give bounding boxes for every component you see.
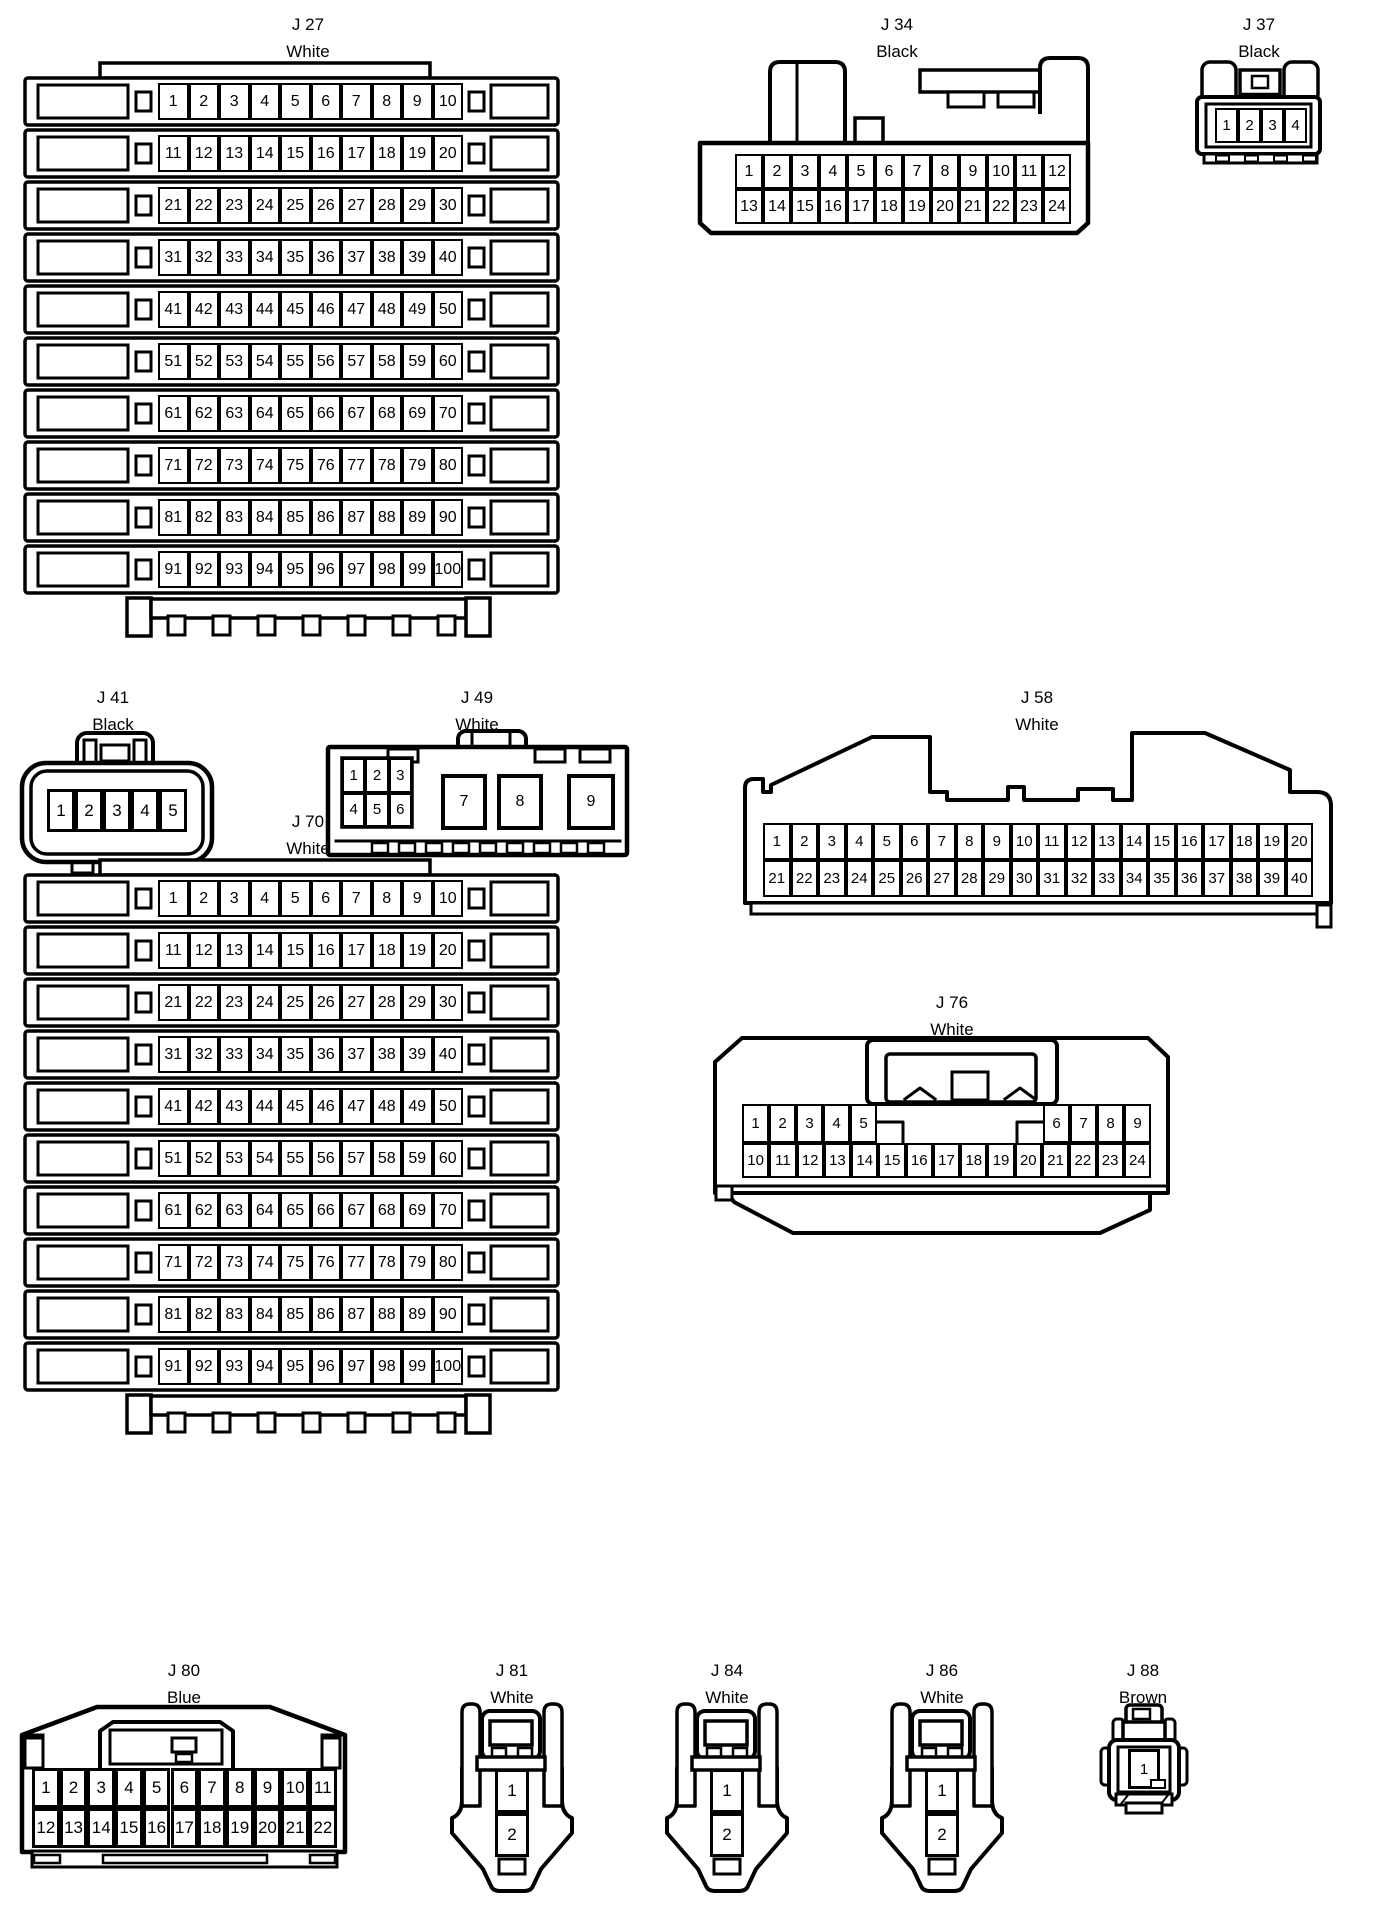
j70-row-left-cavity xyxy=(38,1038,128,1071)
j34-pin-19: 19 xyxy=(903,189,931,224)
j70-id-label: J 70 xyxy=(292,812,324,832)
j41-pin-5: 5 xyxy=(159,789,187,832)
j80-pin-13: 13 xyxy=(60,1808,88,1848)
j70-pin-45: 45 xyxy=(280,1088,311,1125)
j70-pin-23: 23 xyxy=(219,984,250,1021)
j58-pin-18: 18 xyxy=(1231,823,1259,860)
j88-color-label: Brown xyxy=(1119,1688,1167,1708)
j27-pin-77: 77 xyxy=(341,447,372,484)
j70-pin-4: 4 xyxy=(250,880,281,917)
j58-pin-20: 20 xyxy=(1286,823,1314,860)
j76-color-label: White xyxy=(930,1020,973,1040)
j27-row-left-cavity xyxy=(38,345,128,378)
j70-pin-85: 85 xyxy=(280,1296,311,1333)
j27-row-left-key xyxy=(136,248,151,267)
j27-pin-63: 63 xyxy=(219,395,250,432)
j27-pin-31: 31 xyxy=(158,239,189,276)
j76-pin-15: 15 xyxy=(878,1143,905,1178)
j27-pin-93: 93 xyxy=(219,551,250,588)
j70-pin-50: 50 xyxy=(433,1088,464,1125)
j86-cap-inner xyxy=(920,1721,962,1745)
j70-pin-5: 5 xyxy=(280,880,311,917)
j27-pin-39: 39 xyxy=(402,239,433,276)
j70-pin-34: 34 xyxy=(250,1036,281,1073)
j58-pin-21: 21 xyxy=(763,860,791,897)
j27-pin-42: 42 xyxy=(189,291,220,328)
j27-pin-52: 52 xyxy=(189,343,220,380)
j80-pin-11: 11 xyxy=(309,1768,337,1808)
j70-row-right-cavity xyxy=(491,882,548,915)
j70-pin-61: 61 xyxy=(158,1192,189,1229)
j70-pin-18: 18 xyxy=(372,932,403,969)
j70-pin-2: 2 xyxy=(189,880,220,917)
j70-row-right-key xyxy=(469,993,484,1012)
j70-pin-29: 29 xyxy=(402,984,433,1021)
j58-pin-13: 13 xyxy=(1093,823,1121,860)
j34-pin-14: 14 xyxy=(763,189,791,224)
j27-pin-29: 29 xyxy=(402,187,433,224)
j27-row-left-cavity xyxy=(38,85,128,118)
j27-pin-43: 43 xyxy=(219,291,250,328)
j58-pin-28: 28 xyxy=(956,860,984,897)
j34-pin-23: 23 xyxy=(1015,189,1043,224)
j58-pin-12: 12 xyxy=(1066,823,1094,860)
j34-pin-9: 9 xyxy=(959,154,987,189)
j76-pin-12: 12 xyxy=(797,1143,824,1178)
j49-pin-8: 8 xyxy=(497,774,543,830)
j70-pin-8: 8 xyxy=(372,880,403,917)
j76-pin-7: 7 xyxy=(1070,1104,1097,1143)
j27-pin-94: 94 xyxy=(250,551,281,588)
j27-pin-12: 12 xyxy=(189,135,220,172)
j80-latch-key xyxy=(172,1738,196,1752)
j70-pin-84: 84 xyxy=(250,1296,281,1333)
j80-pin-10: 10 xyxy=(281,1768,309,1808)
j70-row-left-key xyxy=(136,1253,151,1272)
j27-pin-46: 46 xyxy=(311,291,342,328)
j27-pin-8: 8 xyxy=(372,83,403,120)
j27-row-left-cavity xyxy=(38,501,128,534)
j27-row-left-cavity xyxy=(38,137,128,170)
j34-pin-24: 24 xyxy=(1043,189,1071,224)
j58-pin-9: 9 xyxy=(983,823,1011,860)
j41-pin-1: 1 xyxy=(47,789,75,832)
j58-pin-10: 10 xyxy=(1011,823,1039,860)
j70-row-left-key xyxy=(136,1305,151,1324)
j70-pin-1: 1 xyxy=(158,880,189,917)
j27-pin-1: 1 xyxy=(158,83,189,120)
j27-pin-23: 23 xyxy=(219,187,250,224)
j70-pin-91: 91 xyxy=(158,1348,189,1385)
j81-color-label: White xyxy=(490,1688,533,1708)
j27-pin-35: 35 xyxy=(280,239,311,276)
j27-row-left-key xyxy=(136,456,151,475)
j27-row-left-key xyxy=(136,92,151,111)
j27-pin-82: 82 xyxy=(189,499,220,536)
j70-pin-15: 15 xyxy=(280,932,311,969)
j27-pin-44: 44 xyxy=(250,291,281,328)
j27-pin-34: 34 xyxy=(250,239,281,276)
j27-pin-48: 48 xyxy=(372,291,403,328)
j27-pin-6: 6 xyxy=(311,83,342,120)
j70-pin-100: 100 xyxy=(433,1348,464,1385)
j84-pin-2: 2 xyxy=(710,1813,744,1857)
j49-pin-2: 2 xyxy=(365,758,388,793)
j27-pin-95: 95 xyxy=(280,551,311,588)
j27-pin-67: 67 xyxy=(341,395,372,432)
j27-pin-81: 81 xyxy=(158,499,189,536)
j49-tooth xyxy=(372,843,388,853)
j27-pin-72: 72 xyxy=(189,447,220,484)
j80-pin-8: 8 xyxy=(226,1768,254,1808)
j70-pin-32: 32 xyxy=(189,1036,220,1073)
j70-pin-28: 28 xyxy=(372,984,403,1021)
j70-pin-10: 10 xyxy=(433,880,464,917)
j70-pin-24: 24 xyxy=(250,984,281,1021)
j27-row-right-cavity xyxy=(491,501,548,534)
j70-pin-95: 95 xyxy=(280,1348,311,1385)
j27-pin-4: 4 xyxy=(250,83,281,120)
j58-pin-24: 24 xyxy=(846,860,874,897)
j34-pin-11: 11 xyxy=(1015,154,1043,189)
j27-row-right-key xyxy=(469,300,484,319)
j27-pin-97: 97 xyxy=(341,551,372,588)
j70-comb-tooth xyxy=(393,1413,410,1432)
j27-pin-45: 45 xyxy=(280,291,311,328)
j84-cap-inner xyxy=(705,1721,747,1745)
j70-pin-76: 76 xyxy=(311,1244,342,1281)
j81-prong xyxy=(544,1704,562,1806)
j84-prong xyxy=(677,1704,695,1806)
j80-pin-7: 7 xyxy=(198,1768,226,1808)
j49-pin-9: 9 xyxy=(567,774,615,830)
j88-base-tab xyxy=(1126,1803,1162,1813)
j27-pin-69: 69 xyxy=(402,395,433,432)
j70-row-right-key xyxy=(469,1097,484,1116)
j27-pin-65: 65 xyxy=(280,395,311,432)
j27-pin-16: 16 xyxy=(311,135,342,172)
j84-id-label: J 84 xyxy=(711,1661,743,1681)
j70-row-left-cavity xyxy=(38,1142,128,1175)
j27-pin-87: 87 xyxy=(341,499,372,536)
j70-pin-39: 39 xyxy=(402,1036,433,1073)
j81-cap-inner xyxy=(490,1721,532,1745)
j34-pin-1: 1 xyxy=(735,154,763,189)
j37-pin-4: 4 xyxy=(1284,108,1307,143)
j70-pin-43: 43 xyxy=(219,1088,250,1125)
j34-pin-7: 7 xyxy=(903,154,931,189)
j27-pin-11: 11 xyxy=(158,135,189,172)
j88-top-tab-inner xyxy=(1133,1709,1150,1719)
j70-pin-66: 66 xyxy=(311,1192,342,1229)
j70-row-right-key xyxy=(469,1045,484,1064)
j70-pin-35: 35 xyxy=(280,1036,311,1073)
j70-pin-48: 48 xyxy=(372,1088,403,1125)
j70-pin-41: 41 xyxy=(158,1088,189,1125)
j70-pin-92: 92 xyxy=(189,1348,220,1385)
j76-pin-1: 1 xyxy=(742,1104,769,1143)
j70-pin-94: 94 xyxy=(250,1348,281,1385)
j70-pin-80: 80 xyxy=(433,1244,464,1281)
j76-pin-22: 22 xyxy=(1069,1143,1096,1178)
j27-pin-76: 76 xyxy=(311,447,342,484)
j81-id-label: J 81 xyxy=(496,1661,528,1681)
j70-row-left-cavity xyxy=(38,882,128,915)
j86-tip xyxy=(929,1859,955,1874)
j76-pin-21: 21 xyxy=(1042,1143,1069,1178)
j70-row-right-cavity xyxy=(491,1298,548,1331)
j70-row-right-cavity xyxy=(491,1090,548,1123)
j80-base-mark xyxy=(34,1855,60,1863)
j76-pin-23: 23 xyxy=(1097,1143,1124,1178)
j80-pin-15: 15 xyxy=(115,1808,143,1848)
j81-prong xyxy=(462,1704,480,1806)
j70-comb-tooth xyxy=(168,1413,185,1432)
j76-pin-24: 24 xyxy=(1124,1143,1151,1178)
j70-pin-9: 9 xyxy=(402,880,433,917)
j70-row-right-key xyxy=(469,1357,484,1376)
j27-row-right-key xyxy=(469,560,484,579)
j80-color-label: Blue xyxy=(167,1688,201,1708)
j58-pin-17: 17 xyxy=(1203,823,1231,860)
j80-pin-20: 20 xyxy=(254,1808,282,1848)
j27-pin-33: 33 xyxy=(219,239,250,276)
j27-pin-56: 56 xyxy=(311,343,342,380)
j86-prong xyxy=(892,1704,910,1806)
j76-pin-16: 16 xyxy=(906,1143,933,1178)
j58-base xyxy=(751,903,1325,914)
j27-pin-40: 40 xyxy=(433,239,464,276)
j70-row-right-cavity xyxy=(491,1142,548,1175)
j27-pin-57: 57 xyxy=(341,343,372,380)
j76-pin-14: 14 xyxy=(851,1143,878,1178)
j76-pin-2: 2 xyxy=(769,1104,796,1143)
j27-pin-3: 3 xyxy=(219,83,250,120)
j58-pin-30: 30 xyxy=(1011,860,1039,897)
j86-color-label: White xyxy=(920,1688,963,1708)
j27-pin-32: 32 xyxy=(189,239,220,276)
j49-tooth xyxy=(426,843,442,853)
j41-color-label: Black xyxy=(92,715,134,735)
j70-pin-56: 56 xyxy=(311,1140,342,1177)
j58-pin-38: 38 xyxy=(1231,860,1259,897)
j27-pin-90: 90 xyxy=(433,499,464,536)
j58-pin-2: 2 xyxy=(791,823,819,860)
j58-pin-32: 32 xyxy=(1066,860,1094,897)
j70-pin-67: 67 xyxy=(341,1192,372,1229)
j81-pin-1: 1 xyxy=(495,1769,529,1813)
j80-pin-4: 4 xyxy=(115,1768,143,1808)
j37-color-label: Black xyxy=(1238,42,1280,62)
j27-pin-9: 9 xyxy=(402,83,433,120)
j80-latch-key2 xyxy=(176,1754,192,1762)
j34-rail-detail xyxy=(998,92,1034,107)
j58-pin-22: 22 xyxy=(791,860,819,897)
j70-row-left-cavity xyxy=(38,1246,128,1279)
j80-pin-22: 22 xyxy=(309,1808,337,1848)
j70-top-bar xyxy=(100,860,430,875)
j58-id-label: J 58 xyxy=(1021,688,1053,708)
j27-row-left-key xyxy=(136,560,151,579)
j27-row-right-cavity xyxy=(491,85,548,118)
j70-pin-27: 27 xyxy=(341,984,372,1021)
j70-pin-55: 55 xyxy=(280,1140,311,1177)
j70-pin-78: 78 xyxy=(372,1244,403,1281)
j70-pin-93: 93 xyxy=(219,1348,250,1385)
j49-pin-5: 5 xyxy=(365,793,388,828)
j58-pin-15: 15 xyxy=(1148,823,1176,860)
j84-color-label: White xyxy=(705,1688,748,1708)
j27-pin-50: 50 xyxy=(433,291,464,328)
j27-row-right-cavity xyxy=(491,241,548,274)
j27-row-left-key xyxy=(136,300,151,319)
j70-comb-tooth xyxy=(213,1413,230,1432)
j70-row-left-cavity xyxy=(38,1298,128,1331)
j70-mount-tab xyxy=(127,1395,151,1433)
j27-comb-tooth xyxy=(303,616,320,635)
j58-pin-25: 25 xyxy=(873,860,901,897)
j27-pin-92: 92 xyxy=(189,551,220,588)
j76-latch-key xyxy=(952,1072,988,1100)
j70-pin-59: 59 xyxy=(402,1140,433,1177)
j27-comb-tooth xyxy=(258,616,275,635)
j80-pin-14: 14 xyxy=(87,1808,115,1848)
j27-comb-tooth xyxy=(438,616,455,635)
j34-pin-8: 8 xyxy=(931,154,959,189)
j49-tooth xyxy=(399,843,415,853)
j34-pin-12: 12 xyxy=(1043,154,1071,189)
j70-row-left-cavity xyxy=(38,1350,128,1383)
j70-pin-87: 87 xyxy=(341,1296,372,1333)
j37-pin-1: 1 xyxy=(1215,108,1238,143)
j76-notch xyxy=(716,1186,732,1200)
j70-pin-7: 7 xyxy=(341,880,372,917)
j80-pin-1: 1 xyxy=(32,1768,60,1808)
j70-pin-83: 83 xyxy=(219,1296,250,1333)
j34-pin-15: 15 xyxy=(791,189,819,224)
j27-row-left-key xyxy=(136,144,151,163)
j70-pin-3: 3 xyxy=(219,880,250,917)
j80-base-mark xyxy=(310,1855,335,1863)
j70-pin-46: 46 xyxy=(311,1088,342,1125)
j37-base-tick xyxy=(1216,156,1229,162)
j27-row-right-cavity xyxy=(491,449,548,482)
j70-row-right-key xyxy=(469,941,484,960)
j80-pin-19: 19 xyxy=(226,1808,254,1848)
j27-color-label: White xyxy=(286,42,329,62)
j27-pin-84: 84 xyxy=(250,499,281,536)
j80-base-mark xyxy=(103,1855,267,1863)
j27-pin-51: 51 xyxy=(158,343,189,380)
j80-shoulder xyxy=(322,1738,340,1768)
j49-color-label: White xyxy=(455,715,498,735)
j34-pin-13: 13 xyxy=(735,189,763,224)
j49-pin-1: 1 xyxy=(342,758,365,793)
j70-pin-63: 63 xyxy=(219,1192,250,1229)
j80-latch-inner xyxy=(110,1730,222,1764)
j70-pin-90: 90 xyxy=(433,1296,464,1333)
j86-pin-1: 1 xyxy=(925,1769,959,1813)
j58-pin-36: 36 xyxy=(1176,860,1204,897)
j58-base-foot xyxy=(1317,905,1331,927)
connector-pinout-diagram: 1234567891011121314151617181920212223242… xyxy=(0,0,1376,1920)
j70-comb-tooth xyxy=(348,1413,365,1432)
j49-id-label: J 49 xyxy=(461,688,493,708)
j76-pin-6: 6 xyxy=(1043,1104,1070,1143)
j27-pin-27: 27 xyxy=(341,187,372,224)
j58-pin-8: 8 xyxy=(956,823,984,860)
j58-pin-6: 6 xyxy=(901,823,929,860)
j27-pin-91: 91 xyxy=(158,551,189,588)
j70-row-right-cavity xyxy=(491,1246,548,1279)
j70-mount-tab xyxy=(466,1395,490,1433)
j34-rail-detail xyxy=(948,92,984,107)
j80-pin-12: 12 xyxy=(32,1808,60,1848)
j27-pin-68: 68 xyxy=(372,395,403,432)
j27-pin-64: 64 xyxy=(250,395,281,432)
j76-skirt xyxy=(728,1193,1150,1233)
j58-pin-11: 11 xyxy=(1038,823,1066,860)
j37-base-tick xyxy=(1303,156,1316,162)
j27-row-right-cavity xyxy=(491,553,548,586)
j27-pin-99: 99 xyxy=(402,551,433,588)
j58-pin-37: 37 xyxy=(1203,860,1231,897)
j58-pin-39: 39 xyxy=(1258,860,1286,897)
j27-pin-20: 20 xyxy=(433,135,464,172)
j58-pin-7: 7 xyxy=(928,823,956,860)
j27-pin-30: 30 xyxy=(433,187,464,224)
j70-row-left-key xyxy=(136,1201,151,1220)
j49-notch xyxy=(535,749,565,762)
j70-pin-86: 86 xyxy=(311,1296,342,1333)
j80-pin-2: 2 xyxy=(60,1768,88,1808)
j70-pin-47: 47 xyxy=(341,1088,372,1125)
j34-id-label: J 34 xyxy=(881,15,913,35)
j70-pin-52: 52 xyxy=(189,1140,220,1177)
j27-row-right-key xyxy=(469,248,484,267)
j70-pin-82: 82 xyxy=(189,1296,220,1333)
j58-pin-4: 4 xyxy=(846,823,874,860)
j27-pin-54: 54 xyxy=(250,343,281,380)
j58-pin-19: 19 xyxy=(1258,823,1286,860)
j27-row-right-key xyxy=(469,508,484,527)
j27-row-right-key xyxy=(469,456,484,475)
j27-pin-41: 41 xyxy=(158,291,189,328)
j41-pin-2: 2 xyxy=(75,789,103,832)
j34-pin-16: 16 xyxy=(819,189,847,224)
j27-pin-78: 78 xyxy=(372,447,403,484)
j58-pin-1: 1 xyxy=(763,823,791,860)
j70-pin-79: 79 xyxy=(402,1244,433,1281)
j27-row-right-key xyxy=(469,196,484,215)
j70-row-left-key xyxy=(136,1149,151,1168)
j88-key-notch xyxy=(1150,1779,1166,1789)
j84-prong xyxy=(759,1704,777,1806)
j70-pin-25: 25 xyxy=(280,984,311,1021)
j27-pin-88: 88 xyxy=(372,499,403,536)
j86-pin-2: 2 xyxy=(925,1813,959,1857)
j27-pin-66: 66 xyxy=(311,395,342,432)
j70-pin-53: 53 xyxy=(219,1140,250,1177)
j27-row-left-key xyxy=(136,196,151,215)
j70-pin-54: 54 xyxy=(250,1140,281,1177)
j34-pin-2: 2 xyxy=(763,154,791,189)
j58-pin-16: 16 xyxy=(1176,823,1204,860)
j76-pin-5: 5 xyxy=(850,1104,877,1143)
j58-pin-23: 23 xyxy=(818,860,846,897)
j70-row-right-key xyxy=(469,1253,484,1272)
j58-pin-14: 14 xyxy=(1121,823,1149,860)
